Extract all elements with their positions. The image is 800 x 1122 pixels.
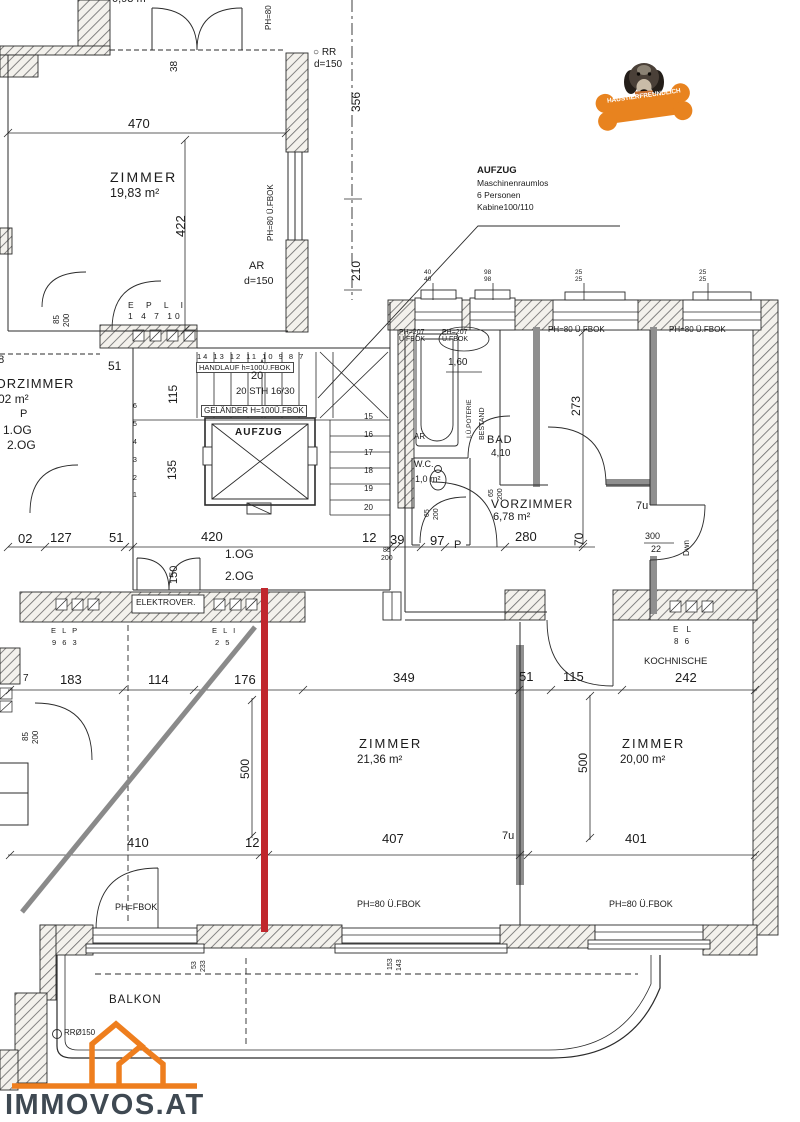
dim-176: 176 [234, 673, 256, 687]
s3: 3 [133, 457, 137, 464]
ph80-top-b: PH=80 Ü.FBOK [669, 326, 726, 334]
note-line3: Kabine100/110 [477, 203, 534, 212]
structure-lines [0, 8, 650, 925]
zimmer2-area: 21,36 m² [357, 754, 402, 766]
dim-114: 114 [148, 673, 169, 687]
dim-150: 150 [169, 566, 181, 584]
dim-500-r: 500 [577, 753, 590, 773]
ph-fbok: PH=FBOK [115, 903, 157, 912]
s17: 17 [364, 449, 373, 457]
ph80-window-left: PH=80 Ü.FBOK [267, 184, 275, 241]
zimmer2-name: ZIMMER [359, 737, 422, 751]
dim-470: 470 [128, 117, 150, 131]
dim-422: 422 [174, 215, 188, 237]
eli-numbers: 2 5 [215, 639, 231, 647]
og2-left: 2.OG [7, 439, 36, 452]
aufzug-label: AUFZUG [235, 428, 283, 439]
zimmer3-name: ZIMMER [622, 737, 685, 751]
p-left: P [20, 409, 27, 421]
dim-407: 407 [382, 832, 404, 846]
door200-c: 200 [32, 731, 40, 744]
zimmer1-area: 19,83 m² [110, 187, 159, 200]
dim-70: 70 [573, 533, 586, 546]
p-mid: P [454, 540, 461, 552]
red-marker-line [261, 588, 268, 932]
gray-marker-line [22, 627, 255, 912]
top-area-cut: 0,93 m² [112, 0, 149, 6]
logo-text: IMMOVOS.AT [5, 1090, 205, 1120]
zimmer3-area: 20,00 m² [620, 754, 665, 766]
dim-401: 401 [625, 832, 647, 846]
bad-area: 4,10 [491, 449, 510, 460]
kochnische-name: KOCHNISCHE [644, 657, 707, 667]
wc-name: W.C. [414, 460, 434, 469]
el-numbers-c: 8 6 [674, 638, 691, 646]
poterie: I.Ü.POTERIE [467, 399, 474, 438]
ph80-bottom-b: PH=80 Ü.FBOK [609, 900, 673, 909]
dim-7u-low: 7u [502, 831, 514, 843]
s4: 4 [133, 439, 137, 446]
win-143: 143 [396, 959, 403, 971]
bottom-windows [86, 925, 710, 953]
dim-242: 242 [675, 671, 697, 685]
wc-200: 200 [433, 508, 440, 520]
dim-420-stair: 420 [201, 530, 223, 544]
dim-22: 22 [651, 545, 661, 554]
door85-b: 85 [383, 547, 391, 554]
ph80-top-a: PH=80 Ü.FBOK [548, 326, 605, 334]
og2-mid: 2.OG [225, 570, 254, 583]
dim-115-low: 115 [563, 670, 584, 684]
door200-b: 200 [381, 555, 393, 562]
dim-135: 135 [166, 460, 179, 480]
dim-48: 48 [0, 355, 4, 367]
dim-51-wall: 51 [108, 360, 121, 373]
bad-65: 65 [488, 489, 495, 497]
dim-356: 356 [350, 92, 363, 112]
dim-210: 210 [350, 261, 363, 281]
win-pair-2: 98 98 [484, 270, 491, 284]
ph207-a: PH=207 Ü.FBOK [399, 329, 425, 344]
og1-left: 1.OG [3, 424, 32, 437]
entry-door [383, 592, 401, 620]
handlauf: HANDLAUF h=100Ü.FBOK [196, 362, 294, 373]
note-line2: 6 Personen [477, 191, 520, 200]
dwn: Dwn [683, 540, 691, 556]
wc-65: 65 [424, 509, 431, 517]
win-53: 53 [191, 961, 198, 969]
dim-39: 39 [390, 533, 404, 547]
dim-12-main: 12 [362, 531, 376, 545]
gelaender: GELÄNDER H=100Ü.FBOK [201, 405, 307, 417]
s18: 18 [364, 467, 373, 475]
stair-sth: 20 STH 16/30 [236, 387, 295, 397]
stair-plus20: 20 [251, 371, 263, 383]
win-pair-4: 25 25 [699, 270, 706, 284]
elp-numbers: 9 6 3 [52, 639, 79, 647]
vorzimmer1-name: VORZIMMER [491, 498, 573, 511]
bad-name: BAD [487, 435, 513, 447]
ph207-b: PH=207 Ü.FBOK [442, 329, 468, 344]
balcony-outline [53, 955, 661, 1058]
floor-plan: 0,93 m²470422ZIMMER19,83 m²38○ RRd=15035… [0, 0, 800, 1122]
epli-numbers: 1 4 7 10 [128, 312, 183, 321]
win-pair-3: 25 25 [575, 270, 582, 284]
vorzimmer2-name: VORZIMMER [0, 377, 74, 391]
eli-letters: E L I [212, 627, 237, 635]
el-letters-c: E L [673, 626, 694, 634]
rr150: RRØ150 [64, 1029, 95, 1037]
dim-160: 1,60 [448, 358, 467, 369]
elp-letters: E L P [51, 627, 79, 635]
bathtub [416, 334, 458, 446]
vorzimmer1-area: 6,78 m² [493, 512, 530, 524]
wc-area: 1,0 m² [415, 475, 441, 484]
epli-letters: E P L I [128, 301, 188, 310]
ph80-bottom-a: PH=80 Ü.FBOK [357, 900, 421, 909]
dim-7-low: 7 [23, 674, 29, 685]
dim-500-l: 500 [239, 759, 252, 779]
zimmer1-name: ZIMMER [110, 170, 177, 185]
note-line1: Maschinenraumlos [477, 179, 548, 188]
elektrover: ELEKTROVER. [136, 598, 196, 607]
wc-ar: AR [414, 433, 425, 441]
s19: 19 [364, 485, 373, 493]
dim-280: 280 [515, 530, 537, 544]
win-pair-1: 40 40 [424, 270, 431, 284]
ar-label: AR [249, 261, 264, 273]
dim-127: 127 [50, 531, 72, 545]
dim-349: 349 [393, 671, 415, 685]
dim-115: 115 [167, 385, 180, 404]
win-153: 153 [387, 958, 394, 970]
balkon: BALKON [109, 994, 162, 1006]
stair-top-numbers: 14 13 12 11 10 9 8 7 [197, 353, 305, 361]
note-title: AUFZUG [477, 166, 517, 176]
dim-410: 410 [127, 836, 149, 850]
door85-c: 85 [22, 732, 30, 741]
dashed-lines [0, 0, 638, 1046]
dim-7u-door: 7u [636, 501, 648, 513]
s15: 15 [364, 413, 373, 421]
s2: 2 [133, 475, 137, 482]
dim-273: 273 [570, 396, 583, 416]
bestand: BESTAND [479, 407, 486, 440]
s20: 20 [364, 504, 373, 512]
s6: 6 [133, 403, 137, 410]
door85-a: 85 [53, 315, 61, 324]
dim-51-low: 51 [519, 670, 533, 684]
dim-97: 97 [430, 534, 444, 548]
dim-12-low: 12 [245, 836, 259, 850]
dim-183: 183 [60, 673, 82, 687]
og1-mid: 1.OG [225, 548, 254, 561]
s1: 1 [133, 492, 137, 499]
vorzimmer2-area: 9,02 m² [0, 393, 29, 406]
dim-51-main: 51 [109, 531, 123, 545]
s16: 16 [364, 431, 373, 439]
dim-300: 300 [645, 532, 660, 541]
rr-top: ○ RR [313, 48, 336, 59]
dim-02: 02 [18, 532, 32, 546]
dim-38: 38 [170, 61, 181, 72]
door200-a: 200 [63, 314, 71, 327]
ar-d: d=150 [244, 276, 274, 287]
win-233: 233 [200, 960, 207, 972]
ph80-top-cut: PH=80 [265, 5, 273, 30]
rr-top-d: d=150 [314, 60, 342, 71]
s5: 5 [133, 421, 137, 428]
